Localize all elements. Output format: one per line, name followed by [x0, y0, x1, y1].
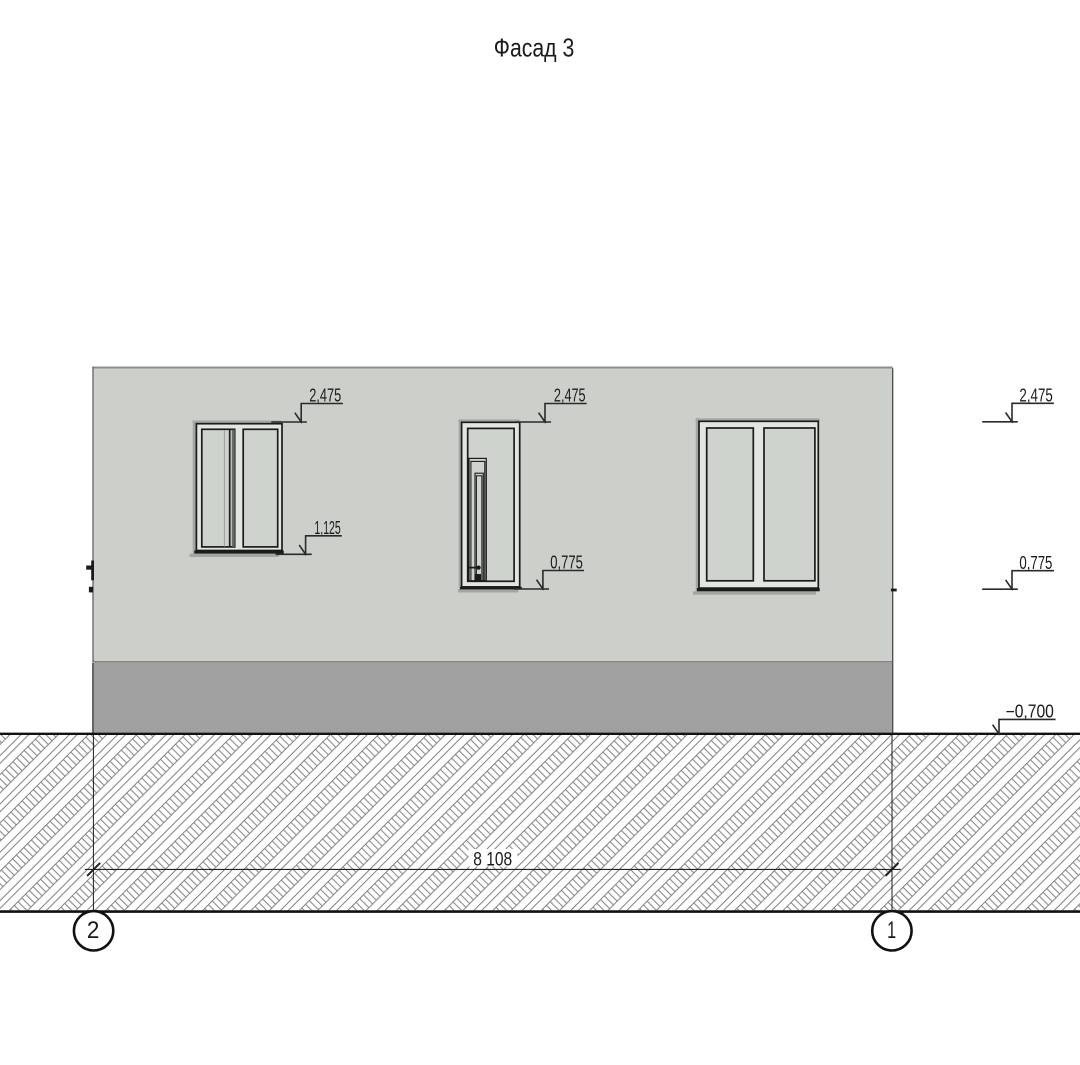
- svg-text:−0,700: −0,700: [1006, 702, 1054, 722]
- svg-text:2,475: 2,475: [309, 386, 341, 406]
- svg-text:0,775: 0,775: [1019, 553, 1052, 573]
- svg-text:1: 1: [887, 917, 896, 944]
- svg-text:2,475: 2,475: [554, 386, 586, 406]
- svg-text:2,475: 2,475: [1019, 386, 1052, 406]
- svg-text:Фасад 3: Фасад 3: [494, 32, 575, 62]
- svg-text:0,775: 0,775: [550, 553, 583, 573]
- svg-text:1,125: 1,125: [314, 518, 340, 538]
- svg-text:2: 2: [87, 917, 100, 944]
- svg-text:8 108: 8 108: [473, 849, 512, 871]
